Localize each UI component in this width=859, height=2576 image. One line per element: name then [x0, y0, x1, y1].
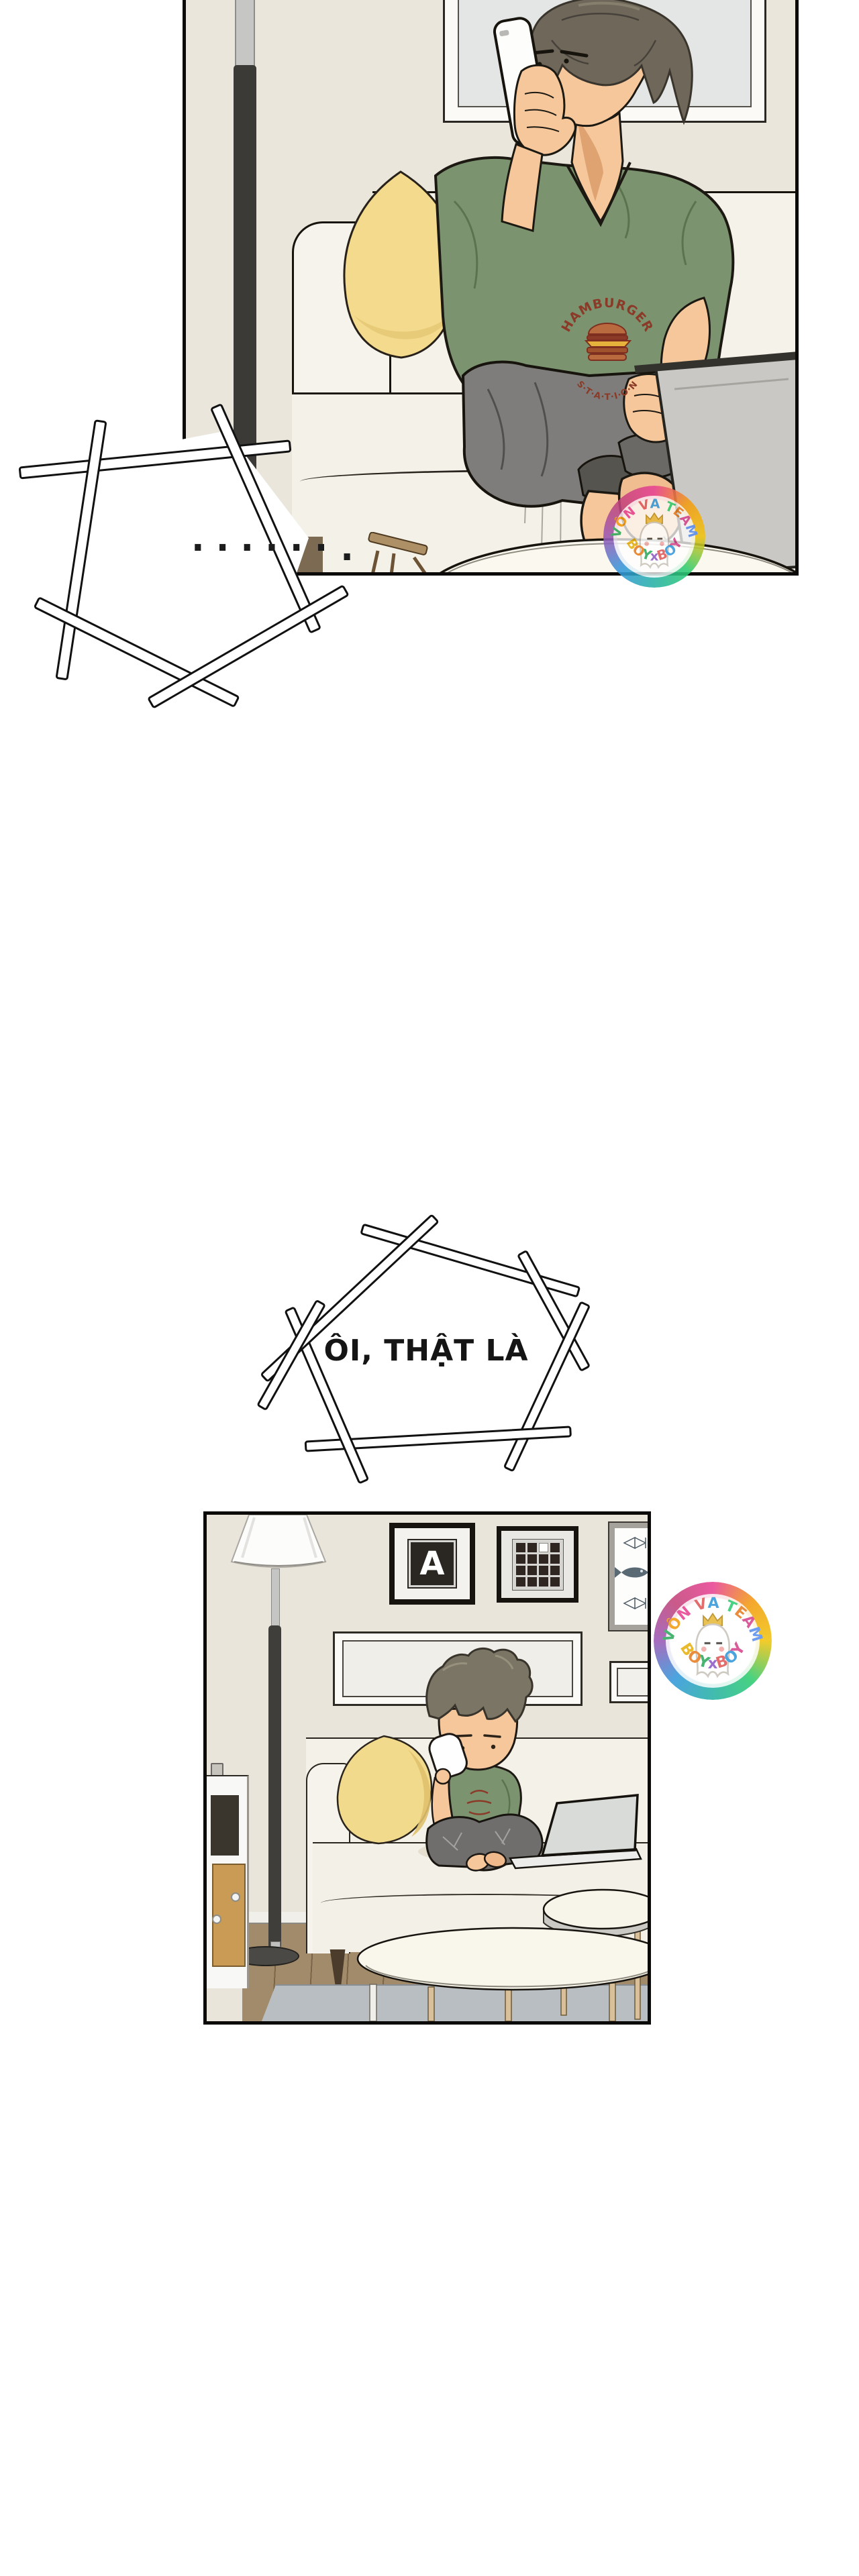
panel-2: A	[203, 1511, 651, 2025]
coffee-table	[351, 1923, 650, 2021]
panel-1: HAMBURGER S·T·A·T·I·O·N	[183, 0, 799, 576]
translator-watermark: VÔN VA TEAM BOYxBOY	[603, 486, 705, 588]
translator-watermark: VÔN VA TEAM BOYxBOY	[654, 1582, 772, 1700]
ellipsis-text: .......	[187, 515, 274, 576]
bubble-text: ÔI, THẬT LÀ	[305, 1334, 547, 1368]
comic-page: HAMBURGER S·T·A·T·I·O·N	[0, 0, 859, 2576]
throw-pillow	[338, 1736, 432, 1843]
